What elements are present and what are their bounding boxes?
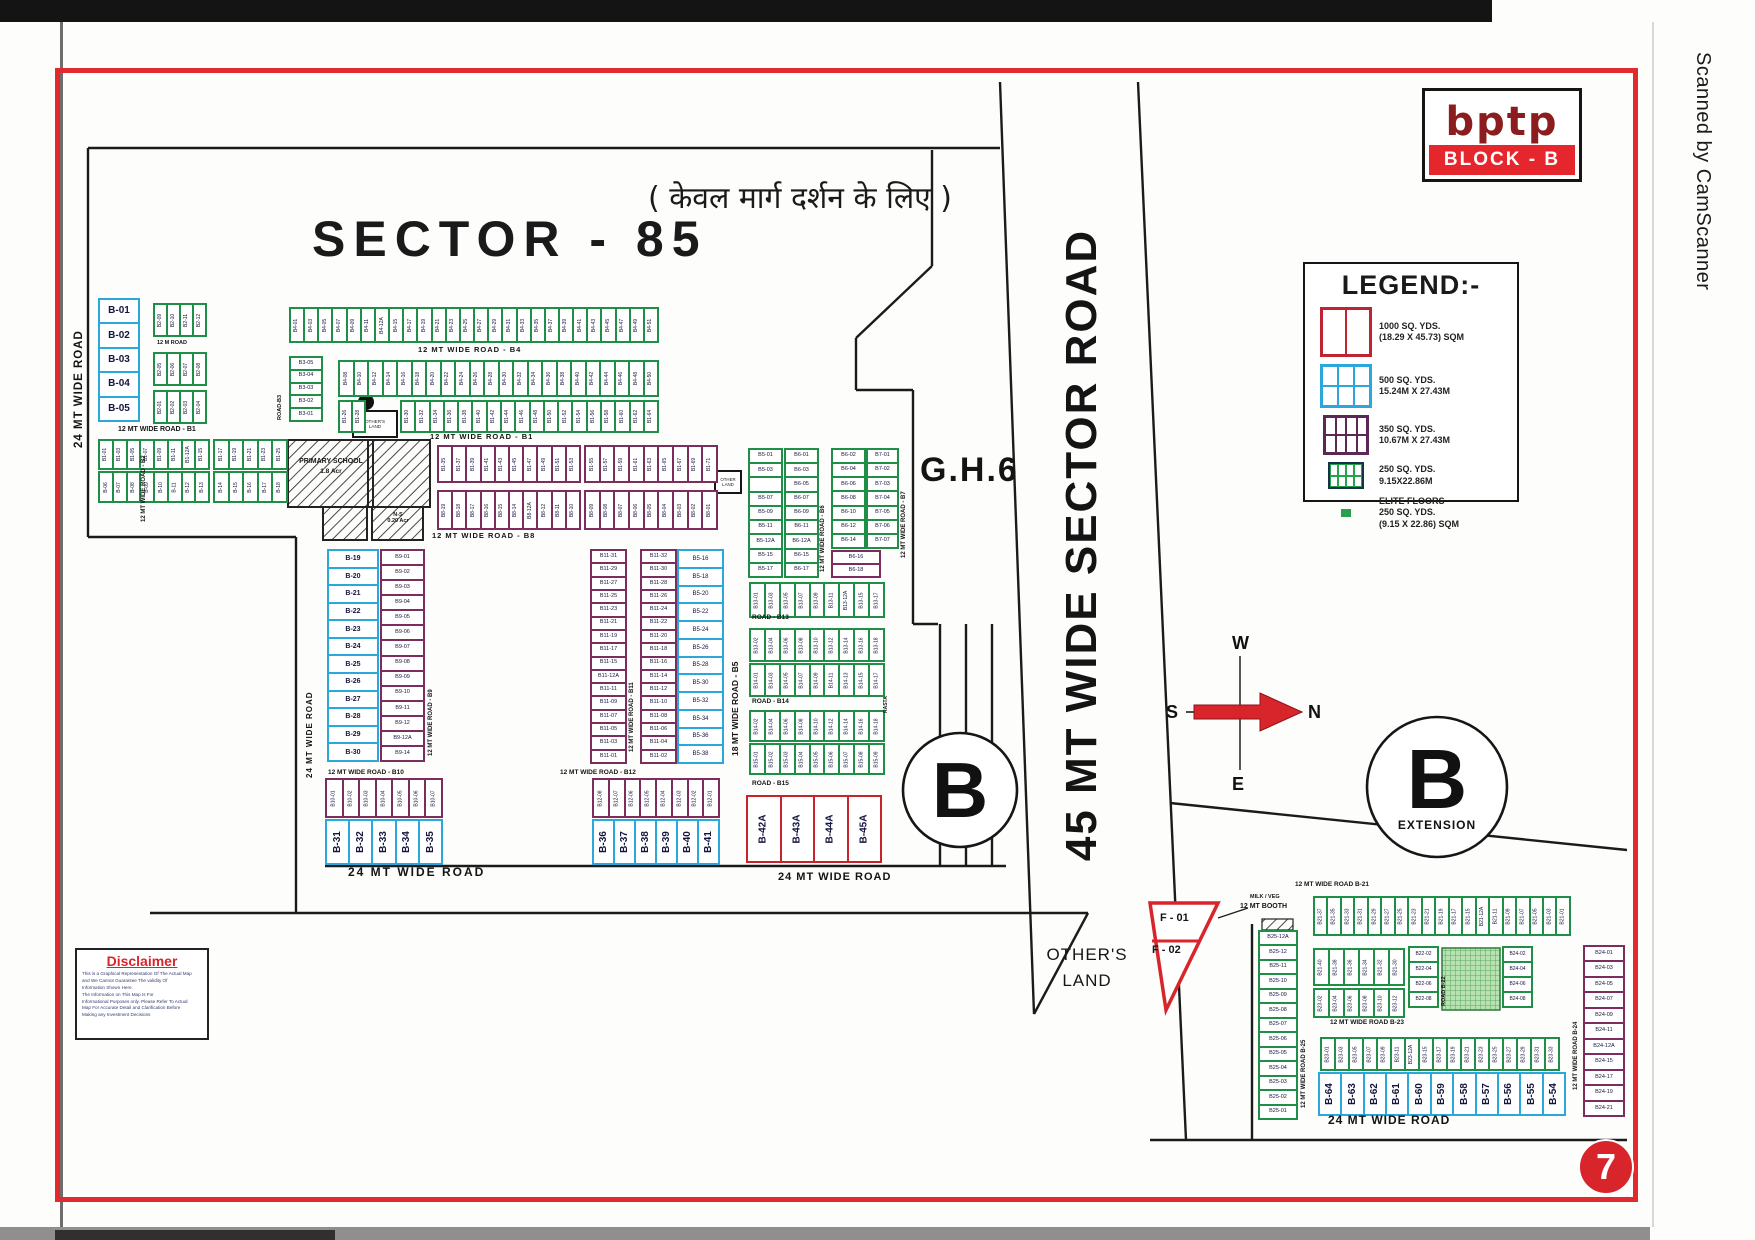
plot-B6-14: B6-14 <box>832 534 865 548</box>
plot-B-02: B-02 <box>99 323 139 347</box>
road-24mt-left: 24 MT WIDE ROAD <box>74 330 86 448</box>
plot-B11-27: B11-27 <box>591 577 626 590</box>
plot-B13-08: B13-08 <box>795 629 810 661</box>
plot-B4-37: B4-37 <box>545 308 559 342</box>
plot-B1-69: B1-69 <box>688 446 703 482</box>
plot-B1-09: B1-09 <box>154 440 168 469</box>
strip-b1-even-b: B1-30B1-32B1-34B1-36B1-38B1-40B1-42B1-44… <box>400 400 659 433</box>
plot-B21-21: B21-21 <box>1422 897 1435 935</box>
road-b15: ROAD - B15 <box>752 781 789 788</box>
plot-B8-15: B8-15 <box>495 491 509 529</box>
legend-title: LEGEND:- <box>1313 270 1509 301</box>
plot-B5-18: B5-18 <box>678 568 723 586</box>
plot-B4-12: B4-12 <box>368 361 383 396</box>
plot-B15-05: B15-05 <box>810 744 825 774</box>
plot-B5-24: B5-24 <box>678 621 723 639</box>
plot-B9-10: B9-10 <box>381 686 424 701</box>
plot-B1-60: B1-60 <box>615 401 629 432</box>
road-12m: 12 M ROAD <box>157 341 187 347</box>
legend-entry: 350 SQ. YDS.10.67M X 27.43M <box>1313 415 1509 455</box>
plot-B13-02: B13-02 <box>750 629 765 661</box>
plot-B4-33: B4-33 <box>517 308 531 342</box>
road-b7: 12 MT WIDE ROAD - B7 <box>901 491 907 558</box>
plot-B-24: B-24 <box>328 638 378 656</box>
compass-icon <box>1186 656 1302 770</box>
plot-B14-11: B14-11 <box>824 664 839 696</box>
plot-B1-11: B1-11 <box>168 440 182 469</box>
road-b4: 12 MT WIDE ROAD - B4 <box>418 346 521 354</box>
plot-B8-17: B8-17 <box>466 491 480 529</box>
plot-B1-03: B1-03 <box>113 440 127 469</box>
legend-entry: 250 SQ. YDS.9.15X22.86M <box>1313 462 1509 489</box>
plot-B4-18: B4-18 <box>412 361 427 396</box>
plot-B1-42: B1-42 <box>487 401 501 432</box>
plot-B13-01: B13-01 <box>750 583 765 617</box>
plot-B21-12A: B21-12A <box>1476 897 1489 935</box>
ns-label: N-S 0.20 Acr <box>378 512 418 524</box>
plot-B5-01: B5-01 <box>749 449 782 463</box>
road-45mt: 45 MT WIDE SECTOR ROAD <box>1060 229 1104 861</box>
plot-B11-21: B11-21 <box>591 617 626 630</box>
legend-entry: 500 SQ. YDS.15.24M X 27.43M <box>1313 364 1509 408</box>
compass-n: N <box>1308 702 1321 723</box>
plot-B13-15: B13-15 <box>854 583 869 617</box>
plot-B1-57: B1-57 <box>600 446 615 482</box>
plot-B2-08: B2-08 <box>193 353 206 385</box>
plot-B1-41: B1-41 <box>481 446 495 482</box>
plot-B-31: B-31 <box>326 820 349 864</box>
plot-B1-71: B1-71 <box>702 446 717 482</box>
plot-B14-01: B14-01 <box>750 664 765 696</box>
plot-B5-28: B5-28 <box>678 657 723 675</box>
road-b10: 12 MT WIDE ROAD - B10 <box>328 770 404 777</box>
plot-B23-17: B23-17 <box>1433 1038 1447 1070</box>
plot-B14-02: B14-02 <box>750 711 765 741</box>
plot-B4-32: B4-32 <box>513 361 528 396</box>
scanned-site-plan: SECTOR - 85 ( केवल मार्ग दर्शन के लिए ) … <box>0 0 1755 1240</box>
plot-B7-07: B7-07 <box>867 534 898 548</box>
strip-b10-row: B10-01B10-02B10-03B10-04B10-05B10-06B10-… <box>325 778 443 818</box>
plot-B-45A: B-45A <box>848 796 882 862</box>
plot-B8-04: B8-04 <box>658 491 673 529</box>
plot-B6-09: B6-09 <box>785 506 818 520</box>
plot-B5-34: B5-34 <box>678 710 723 728</box>
plot-B25-12: B25-12 <box>1259 945 1297 959</box>
plot-B1-25: B1-25 <box>272 440 287 469</box>
plot <box>749 477 782 491</box>
plot-B21-32: B21-32 <box>1374 949 1389 985</box>
plot-B21-33: B21-33 <box>1341 897 1354 935</box>
strip-b14-odd: B14-01B14-03B14-05B14-07B14-09B14-11B14-… <box>749 663 885 697</box>
plot-B13-06: B13-06 <box>780 629 795 661</box>
plot-B1-56: B1-56 <box>587 401 601 432</box>
plot-B11-11: B11-11 <box>591 683 626 696</box>
plot-B23-02: B23-02 <box>1314 989 1329 1017</box>
plot-B21-15: B21-15 <box>1462 897 1475 935</box>
plot-B4-42: B4-42 <box>586 361 601 396</box>
plot-B1-01: B1-01 <box>99 440 113 469</box>
plot-B12-04: B12-04 <box>656 779 672 817</box>
plot-B1-63: B1-63 <box>644 446 659 482</box>
plot-B2-04: B2-04 <box>193 391 206 423</box>
plot-B5-32: B5-32 <box>678 692 723 710</box>
plot-B10-05: B10-05 <box>392 779 409 817</box>
park <box>1442 948 1500 1010</box>
strip-b8-09-01: B8-09B8-08B8-07B8-06B8-05B8-04B8-03B8-02… <box>584 490 718 530</box>
plot-B-10: B-10 <box>154 472 168 502</box>
plot-B6-06: B6-06 <box>832 477 865 491</box>
plot-B-15: B-15 <box>229 472 244 502</box>
plot-B23-19: B23-19 <box>1447 1038 1461 1070</box>
plot-B4-24: B4-24 <box>455 361 470 396</box>
plot-B9-05: B9-05 <box>381 610 424 625</box>
plot-B4-16: B4-16 <box>397 361 412 396</box>
plot-B23-29: B23-29 <box>1517 1038 1531 1070</box>
plot-B24-09: B24-09 <box>1584 1008 1624 1023</box>
plot-B-33: B-33 <box>372 820 395 864</box>
plot-B21-40: B21-40 <box>1314 949 1329 985</box>
legend-entry-text: 1000 SQ. YDS.(18.29 X 45.73) SQM <box>1379 321 1464 344</box>
plot-B13-14: B13-14 <box>839 629 854 661</box>
plot-B2-05: B2-05 <box>154 353 167 385</box>
plot-B4-19: B4-19 <box>417 308 431 342</box>
plot-B11-08: B11-08 <box>641 710 676 723</box>
plot-B23-09: B23-09 <box>1377 1038 1391 1070</box>
plot-B21-29: B21-29 <box>1368 897 1381 935</box>
plot-B21-11: B21-11 <box>1489 897 1502 935</box>
plot-B9-06: B9-06 <box>381 625 424 640</box>
plot-B-01: B-01 <box>99 299 139 323</box>
plot-B-25: B-25 <box>328 655 378 673</box>
plot-B11-31: B11-31 <box>591 550 626 563</box>
plot-B21-17: B21-17 <box>1449 897 1462 935</box>
legend-swatch <box>1320 307 1372 357</box>
plot-B21-25: B21-25 <box>1395 897 1408 935</box>
plot-B4-26: B4-26 <box>470 361 485 396</box>
plot-B11-12: B11-12 <box>641 683 676 696</box>
plot-B10-06: B10-06 <box>409 779 426 817</box>
bptp-logo: bptp BLOCK - B <box>1422 88 1582 182</box>
road-b1-mid: 12 MT WIDE ROAD - B1 <box>430 433 533 441</box>
plot-B-08: B-08 <box>127 472 141 502</box>
plot-B2-10: B2-10 <box>167 304 180 336</box>
disclaimer-line: Making any Investment Decisions <box>82 1012 202 1019</box>
plot-B24-01: B24-01 <box>1584 946 1624 961</box>
plot-B11-24: B11-24 <box>641 603 676 616</box>
plot-B6-04: B6-04 <box>832 463 865 477</box>
plot-B1-64: B1-64 <box>644 401 658 432</box>
plot-B21-01: B21-01 <box>1556 897 1569 935</box>
plot-B24-03: B24-03 <box>1584 961 1624 976</box>
plot-B4-05: B4-05 <box>318 308 332 342</box>
plot-B14-05: B14-05 <box>780 664 795 696</box>
strip-b2-lower: B2-01B2-02B2-03B2-04 <box>153 390 207 424</box>
plot-B11-14: B11-14 <box>641 670 676 683</box>
road-24mt-mid: 24 MT WIDE ROAD <box>306 691 314 778</box>
plot-B21-31: B21-31 <box>1354 897 1367 935</box>
plot-B1-26: B1-26 <box>339 401 352 432</box>
plot-B13-12: B13-12 <box>824 629 839 661</box>
road-b11: 12 MT WIDE ROAD - B11 <box>629 682 635 752</box>
legend-entry-text: 500 SQ. YDS.15.24M X 27.43M <box>1379 375 1450 398</box>
plot-B8-08: B8-08 <box>600 491 615 529</box>
plot-B10-04: B10-04 <box>376 779 393 817</box>
plot-B8-01: B8-01 <box>702 491 717 529</box>
plot-B-64: B-64 <box>1319 1073 1341 1115</box>
plot-B1-53: B1-53 <box>566 446 580 482</box>
plot-B1-46: B1-46 <box>515 401 529 432</box>
road-24mt-bm: 24 MT WIDE ROAD <box>778 872 891 883</box>
road-b23: 12 MT WIDE ROAD B-23 <box>1330 1020 1404 1027</box>
plot-B2-06: B2-06 <box>167 353 180 385</box>
plot-B10-07: B10-07 <box>425 779 442 817</box>
strip-b8-19-10: B8-19B8-18B8-17B8-16B8-15B8-14B8-12AB8-1… <box>437 490 581 530</box>
plot-B1-44: B1-44 <box>501 401 515 432</box>
legend-entry-text: 350 SQ. YDS.10.67M X 27.43M <box>1379 424 1450 447</box>
plot-B13-18: B13-18 <box>869 629 884 661</box>
road-b2: 12 MT WIDE ROAD - B2 <box>141 455 147 522</box>
strip-b21-odd: B21-37B21-35B21-33B21-31B21-29B21-27B21-… <box>1313 896 1571 936</box>
extension-label: EXTENSION <box>1398 818 1476 832</box>
plot-B8-06: B8-06 <box>629 491 644 529</box>
plot-B3-04: B3-04 <box>290 370 322 383</box>
plot-B25-02: B25-02 <box>1259 1090 1297 1104</box>
plot-B5-15: B5-15 <box>749 549 782 563</box>
strip-b-14-18: B-14B-15B-16B-17B-18 <box>213 471 288 503</box>
plot-B5-12A: B5-12A <box>749 534 782 548</box>
plot-B11-15: B11-15 <box>591 657 626 670</box>
plot-B14-15: B14-15 <box>854 664 869 696</box>
plot-B11-20: B11-20 <box>641 630 676 643</box>
plot-B3-05: B3-05 <box>290 357 322 370</box>
plot-B25-10: B25-10 <box>1259 974 1297 988</box>
plot-B5-22: B5-22 <box>678 603 723 621</box>
plot-B5-26: B5-26 <box>678 639 723 657</box>
plot-B-06: B-06 <box>99 472 113 502</box>
plot-B14-08: B14-08 <box>795 711 810 741</box>
plot-B4-44: B4-44 <box>600 361 615 396</box>
plot-B-60: B-60 <box>1408 1073 1430 1115</box>
disclaimer-line: Map For Accurate Detail and Clarificatio… <box>82 1005 202 1012</box>
plot-B4-48: B4-48 <box>629 361 644 396</box>
plot-B23-01: B23-01 <box>1321 1038 1335 1070</box>
strip-b-06-13: B-06B-07B-08B-09B-10B-11B-12B-13 <box>98 471 210 503</box>
plot-B7-01: B7-01 <box>867 449 898 463</box>
plot-B9-03: B9-03 <box>381 580 424 595</box>
plot-B1-50: B1-50 <box>544 401 558 432</box>
plot-B4-50: B4-50 <box>644 361 659 396</box>
plot-B15-02: B15-02 <box>765 744 780 774</box>
plot-B4-29: B4-29 <box>488 308 502 342</box>
plot-B-36: B-36 <box>593 820 614 864</box>
plot-B-41: B-41 <box>698 820 719 864</box>
plot-B1-49: B1-49 <box>537 446 551 482</box>
plot-B11-09: B11-09 <box>591 696 626 709</box>
plot-B-35: B-35 <box>419 820 442 864</box>
plot-B15-06: B15-06 <box>824 744 839 774</box>
plot-B3-01: B3-01 <box>290 408 322 421</box>
plot-B15-01: B15-01 <box>750 744 765 774</box>
plot-B25-09: B25-09 <box>1259 989 1297 1003</box>
plot-B4-11: B4-11 <box>361 308 375 342</box>
plot-B14-17: B14-17 <box>869 664 884 696</box>
plot-B24-21: B24-21 <box>1584 1101 1624 1116</box>
plot-B1-05: B1-05 <box>127 440 141 469</box>
plot-B-18: B-18 <box>272 472 287 502</box>
plot-B9-12: B9-12 <box>381 716 424 731</box>
plot-B6-07: B6-07 <box>785 492 818 506</box>
plot-B4-22: B4-22 <box>441 361 456 396</box>
plot-B25-05: B25-05 <box>1259 1047 1297 1061</box>
plot-B6-08: B6-08 <box>832 491 865 505</box>
plot-B11-12A: B11-12A <box>591 670 626 683</box>
plot-B8-11: B8-11 <box>552 491 566 529</box>
plot-B2-07: B2-07 <box>180 353 193 385</box>
road-b24: 12 MT WIDE ROAD B-24 <box>1573 1022 1579 1090</box>
disclaimer-line: Informational Purposes only. Please Refe… <box>82 999 202 1006</box>
plot-B6-11: B6-11 <box>785 520 818 534</box>
plot-B4-47: B4-47 <box>616 308 630 342</box>
plot-B1-38: B1-38 <box>458 401 472 432</box>
plot-B-55: B-55 <box>1520 1073 1542 1115</box>
plot-B1-36: B1-36 <box>444 401 458 432</box>
plot-B21-37: B21-37 <box>1314 897 1327 935</box>
plot-B11-18: B11-18 <box>641 643 676 656</box>
plot-B14-06: B14-06 <box>780 711 795 741</box>
road-b25: 12 MT WIDE ROAD B-25 <box>1301 1040 1307 1108</box>
plot-B13-03: B13-03 <box>765 583 780 617</box>
plot-B4-03: B4-03 <box>304 308 318 342</box>
legend-swatch <box>1323 415 1369 455</box>
plot-B9-01: B9-01 <box>381 550 424 565</box>
plot-B9-09: B9-09 <box>381 671 424 686</box>
strip-b-31-35: B-31B-32B-33B-34B-35 <box>325 819 443 865</box>
legend-entry: 1000 SQ. YDS.(18.29 X 45.73) SQM <box>1313 307 1509 357</box>
strip-b1-odd-b: B1-17B1-19B1-21B1-23B1-25 <box>213 439 288 470</box>
plot-B14-16: B14-16 <box>854 711 869 741</box>
plot-B4-40: B4-40 <box>571 361 586 396</box>
plot-B14-14: B14-14 <box>839 711 854 741</box>
plot-B-62: B-62 <box>1364 1073 1386 1115</box>
plot-B11-30: B11-30 <box>641 563 676 576</box>
plot-B2-03: B2-03 <box>180 391 193 423</box>
plot-B4-17: B4-17 <box>403 308 417 342</box>
plot-B4-01: B4-01 <box>290 308 304 342</box>
legend-swatch <box>1320 364 1372 408</box>
plot-B4-41: B4-41 <box>573 308 587 342</box>
plot-B6-16: B6-16 <box>832 551 880 564</box>
plot-B1-19: B1-19 <box>229 440 244 469</box>
plot-B5-07: B5-07 <box>749 492 782 506</box>
plot-B4-35: B4-35 <box>531 308 545 342</box>
compass-s: S <box>1166 702 1178 723</box>
strip-b-19-30: B-19B-20B-21B-22B-23B-24B-25B-26B-27B-28… <box>327 549 379 762</box>
plot-B4-34: B4-34 <box>528 361 543 396</box>
plot-B24-08: B24-08 <box>1503 992 1532 1007</box>
other-land-box-mid: OTHER LAND <box>714 470 742 494</box>
plot-B24-05: B24-05 <box>1584 977 1624 992</box>
plot-B15-07: B15-07 <box>839 744 854 774</box>
plot-B9-07: B9-07 <box>381 640 424 655</box>
plot-B4-39: B4-39 <box>559 308 573 342</box>
plot-B25-06: B25-06 <box>1259 1032 1297 1046</box>
plot-B9-02: B9-02 <box>381 565 424 580</box>
plot-B13-10: B13-10 <box>810 629 825 661</box>
f02-label: F - 02 <box>1152 944 1181 956</box>
plot-B23-05: B23-05 <box>1349 1038 1363 1070</box>
plot-B1-61: B1-61 <box>629 446 644 482</box>
plot-B24-06: B24-06 <box>1503 977 1532 992</box>
strip-b7-col: B7-01B7-02B7-03B7-04B7-05B7-06B7-07 <box>866 448 899 549</box>
block-b-extension-marker: B EXTENSION <box>1369 719 1505 855</box>
plot-B2-02: B2-02 <box>167 391 180 423</box>
plot-B23-23: B23-23 <box>1475 1038 1489 1070</box>
plot-B6-05: B6-05 <box>785 477 818 491</box>
booth-12mt: 12 MT BOOTH <box>1240 903 1287 910</box>
plot-B-05: B-05 <box>99 397 139 421</box>
compass-e: E <box>1232 774 1244 795</box>
plot-B11-26: B11-26 <box>641 590 676 603</box>
plot-B-28: B-28 <box>328 708 378 726</box>
plot-B23-12A: B23-12A <box>1405 1038 1419 1070</box>
plot-B13-09: B13-09 <box>810 583 825 617</box>
plot-B8-05: B8-05 <box>644 491 659 529</box>
strip-b22-col: B22-02B22-04B22-06B22-08 <box>1408 946 1439 1008</box>
strip-b11-col-a: B11-31B11-29B11-27B11-25B11-23B11-21B11-… <box>590 549 627 764</box>
plot-B21-36: B21-36 <box>1344 949 1359 985</box>
plot-B5-17: B5-17 <box>749 563 782 577</box>
plot-B11-23: B11-23 <box>591 603 626 616</box>
plot-B4-30: B4-30 <box>499 361 514 396</box>
plot-B1-21: B1-21 <box>243 440 258 469</box>
plot-B21-27: B21-27 <box>1381 897 1394 935</box>
plot-B4-45: B4-45 <box>601 308 615 342</box>
plot-B8-09: B8-09 <box>585 491 600 529</box>
plot-B2-12: B2-12 <box>193 304 206 336</box>
plot-B22-06: B22-06 <box>1409 977 1438 992</box>
plot-B12-02: B12-02 <box>688 779 704 817</box>
plot-B23-07: B23-07 <box>1363 1038 1377 1070</box>
plot-B8-12A: B8-12A <box>523 491 537 529</box>
plot-B4-28: B4-28 <box>484 361 499 396</box>
bptp-logo-text: bptp <box>1445 102 1558 142</box>
disclaimer-line: This is a Graphical Representation Of Th… <box>82 971 202 978</box>
plot-B1-58: B1-58 <box>601 401 615 432</box>
plot-B14-07: B14-07 <box>795 664 810 696</box>
strip-b42a-45a: B-42AB-43AB-44AB-45A <box>746 795 882 863</box>
booth-milk-veg: MILK / VEG <box>1250 895 1280 901</box>
plot-B1-37: B1-37 <box>452 446 466 482</box>
plot-B13-17: B13-17 <box>869 583 884 617</box>
road-b5: 18 MT WIDE ROAD - B5 <box>731 662 740 756</box>
plot-B23-08: B23-08 <box>1359 989 1374 1017</box>
plot-B24-02: B24-02 <box>1503 947 1532 962</box>
plot-B6-10: B6-10 <box>832 506 865 520</box>
legend-swatch <box>1328 462 1364 489</box>
plot-B7-03: B7-03 <box>867 477 898 491</box>
plot-B1-35: B1-35 <box>438 446 452 482</box>
plot-B12-07: B12-07 <box>609 779 625 817</box>
plot-B3-02: B3-02 <box>290 395 322 408</box>
plot-B1-54: B1-54 <box>572 401 586 432</box>
plot-B12-08: B12-08 <box>593 779 609 817</box>
strip-b1-55-71: B1-55B1-57B1-59B1-61B1-63B1-65B1-67B1-69… <box>584 445 718 483</box>
plot-B-39: B-39 <box>656 820 677 864</box>
plot-B8-12: B8-12 <box>537 491 551 529</box>
plot-B11-16: B11-16 <box>641 657 676 670</box>
legend: LEGEND:- 1000 SQ. YDS.(18.29 X 45.73) SQ… <box>1303 262 1519 502</box>
plot-B5-11: B5-11 <box>749 520 782 534</box>
